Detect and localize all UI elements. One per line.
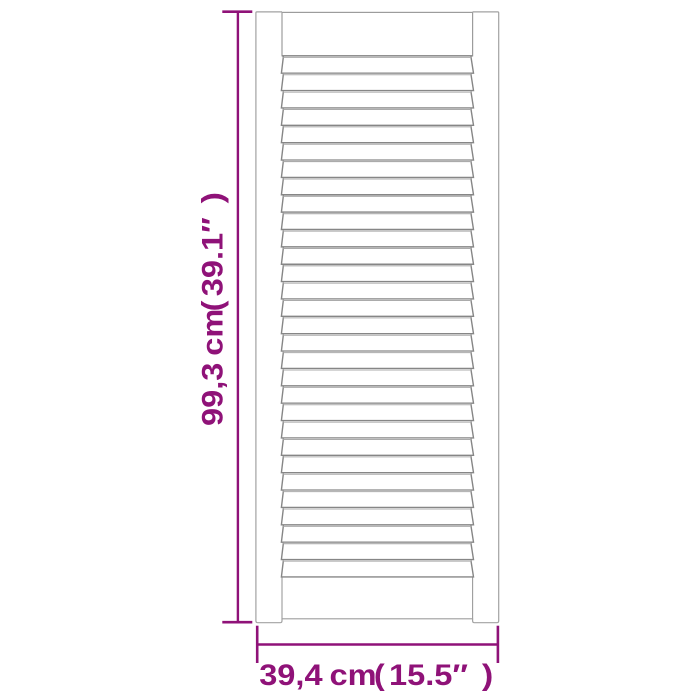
svg-text:39,4cm(15.5″): 39,4cm(15.5″) xyxy=(259,658,493,692)
svg-text:99,3cm(39.1″): 99,3cm(39.1″) xyxy=(196,192,230,426)
